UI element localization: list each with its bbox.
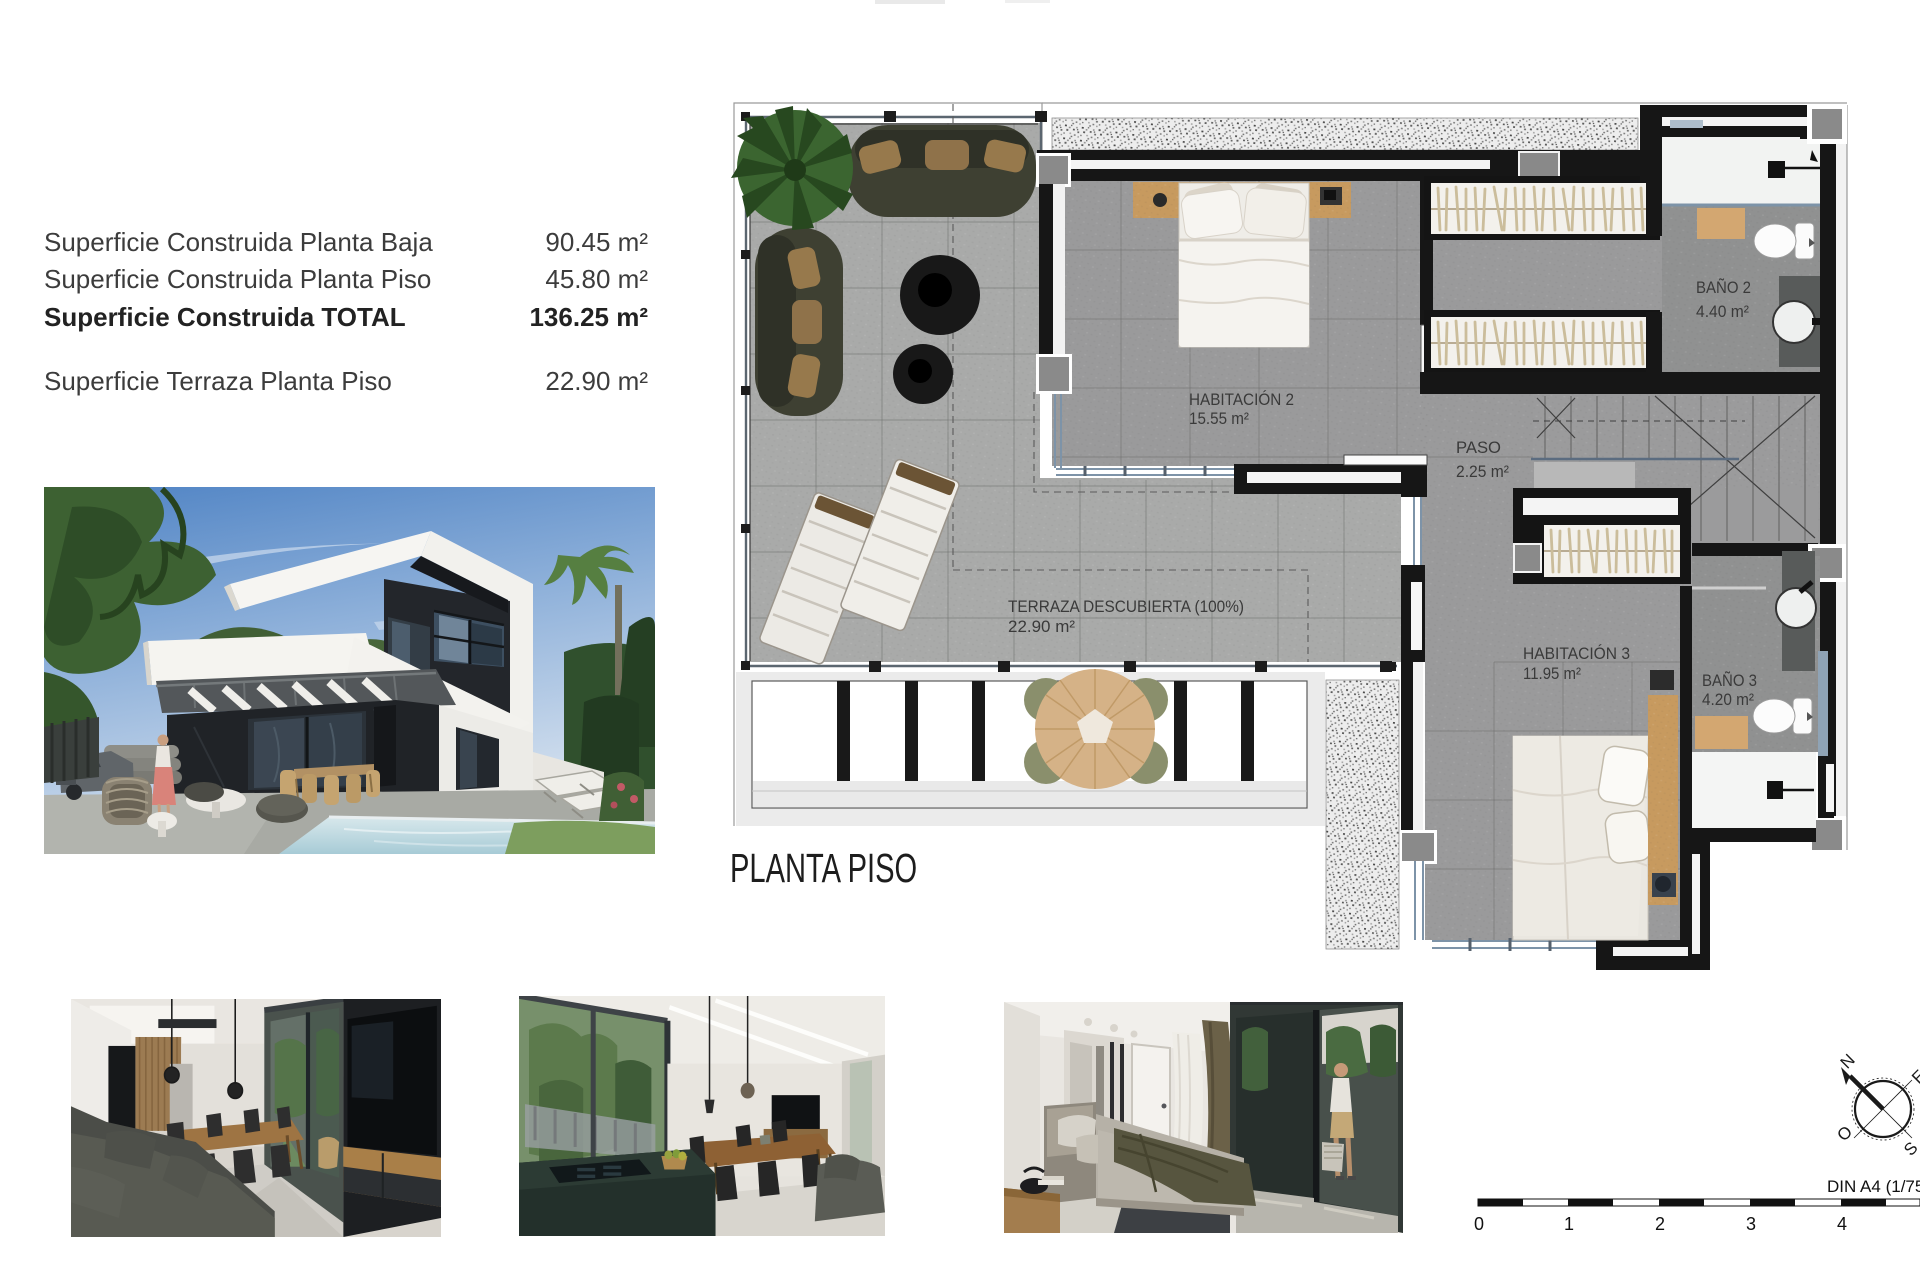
svg-text:PASO: PASO (1456, 438, 1501, 457)
svg-text:HABITACIÓN 2: HABITACIÓN 2 (1189, 390, 1294, 409)
svg-text:HABITACIÓN 3: HABITACIÓN 3 (1523, 644, 1630, 663)
svg-text:11.95 m²: 11.95 m² (1523, 664, 1581, 683)
svg-text:0: 0 (1474, 1214, 1484, 1234)
svg-text:BAÑO 3: BAÑO 3 (1702, 671, 1757, 690)
svg-text:22.90 m²: 22.90 m² (1008, 617, 1075, 636)
svg-text:2.25 m²: 2.25 m² (1456, 462, 1509, 481)
svg-text:N: N (1837, 1050, 1859, 1072)
svg-text:1: 1 (1564, 1214, 1574, 1234)
svg-text:3: 3 (1746, 1214, 1756, 1234)
svg-text:O: O (1833, 1122, 1856, 1145)
svg-text:2: 2 (1655, 1214, 1665, 1234)
svg-text:4.40 m²: 4.40 m² (1696, 302, 1749, 321)
svg-text:4.20 m²: 4.20 m² (1702, 690, 1754, 709)
svg-text:TERRAZA DESCUBIERTA (100%): TERRAZA DESCUBIERTA (100%) (1008, 597, 1244, 616)
svg-text:DIN A4 (1/75): DIN A4 (1/75) (1827, 1177, 1920, 1196)
svg-text:4: 4 (1837, 1214, 1847, 1234)
svg-text:BAÑO 2: BAÑO 2 (1696, 278, 1751, 297)
svg-text:E: E (1908, 1066, 1920, 1087)
svg-text:S: S (1900, 1138, 1920, 1159)
svg-text:15.55 m²: 15.55 m² (1189, 409, 1249, 428)
